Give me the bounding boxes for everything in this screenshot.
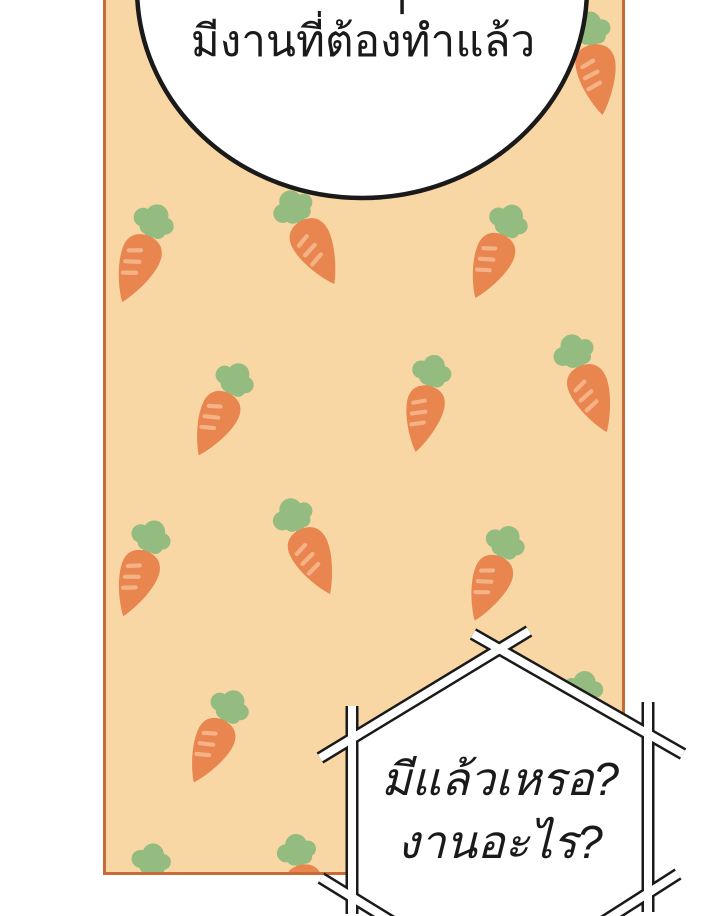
bottom-bubble-line-2: งานอะไร? [352,811,648,874]
bottom-bubble-line-1: มีแล้วเหรอ? [352,748,648,811]
top-bubble-text: มีงานที่ต้องทำแล้ว [147,6,579,76]
comic-page: ๆ มีงานที่ต้องทำแล้ว มีแล้วเหรอ? งานอะไร… [0,0,720,916]
bottom-bubble-text: มีแล้วเหรอ? งานอะไร? [352,748,648,874]
